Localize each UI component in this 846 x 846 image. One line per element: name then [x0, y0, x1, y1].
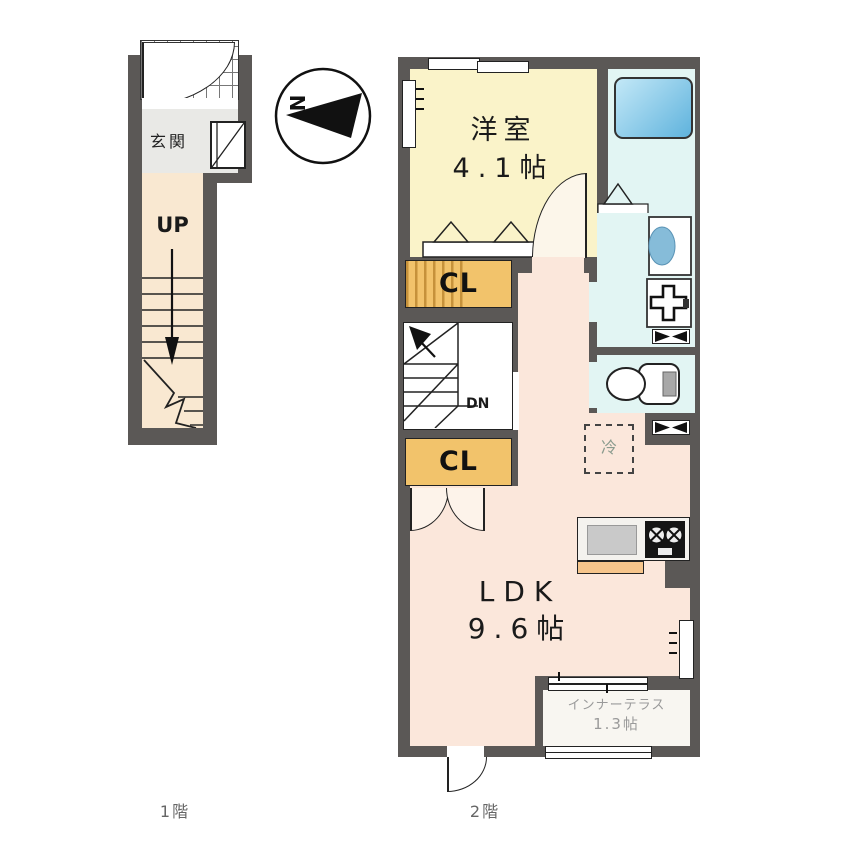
staircase-up-icon [142, 245, 203, 428]
ldk-floor-lower [410, 676, 535, 746]
terrace-sliding-door-bottom [545, 746, 652, 759]
louver-window-icon [652, 329, 690, 344]
floor1-caption: 1階 [135, 798, 215, 822]
stairs-opening [513, 372, 519, 430]
washroom-doorway [589, 282, 597, 322]
western-room-name: 洋室 [410, 112, 597, 150]
floor2-caption: 2階 [445, 798, 525, 822]
bathroom-folding-door-icon [596, 178, 650, 216]
refrigerator-label: 冷 [586, 426, 632, 470]
washing-machine-pan-icon [646, 278, 692, 328]
closet-folding-doors-icon [422, 218, 547, 259]
window-ldk-tick [669, 642, 677, 644]
stairs-up-label: UP [142, 213, 203, 237]
window-ldk-tick [669, 632, 677, 634]
western-room-doorway [532, 257, 584, 273]
closet-lower: CL [405, 438, 512, 486]
compass-north-label: N [285, 95, 309, 112]
toilet-doorway [589, 362, 597, 408]
terrace-door-tick [558, 672, 560, 681]
bathtub-icon [614, 77, 693, 139]
inner-terrace-name: インナーテラス [543, 694, 690, 713]
ldk-area: 9.6帖 [425, 610, 615, 647]
kitchen-right-floor [645, 445, 690, 490]
window-left [402, 80, 416, 148]
refrigerator-space: 冷 [584, 424, 634, 474]
terrace-door-line [549, 683, 647, 684]
kitchen-sink [587, 525, 637, 555]
ldk-doorway [447, 746, 484, 757]
stairs-down-label: DN [466, 396, 489, 412]
window-sliding-top-left [428, 58, 480, 70]
washbasin-icon [648, 216, 692, 276]
window-sliding-top-right [477, 61, 529, 73]
staircase-down [403, 322, 513, 430]
terrace-door-line [546, 752, 651, 753]
staircase-down-icon [404, 323, 511, 428]
shoe-cabinet-icon [210, 121, 246, 169]
toilet-icon [603, 358, 691, 410]
closet-lower-label: CL [406, 439, 511, 484]
window-left-tick [416, 98, 424, 100]
floor-plan-canvas: 玄関 UP 1階 N [0, 0, 846, 846]
inner-terrace-area: 1.3帖 [543, 713, 690, 734]
inner-terrace-label: インナーテラス 1.3帖 [543, 694, 690, 734]
terrace-door-tick [606, 684, 608, 693]
stove-icon [645, 521, 685, 558]
louver-window-icon [652, 420, 690, 435]
compass-icon: N [272, 65, 374, 167]
ldk-label: LDK 9.6帖 [425, 573, 615, 647]
closet-upper-label: CL [406, 261, 511, 306]
entrance-label: 玄関 [150, 128, 188, 152]
window-ldk-right [679, 620, 694, 679]
window-left-tick [416, 88, 424, 90]
window-left-tick [416, 108, 424, 110]
ldk-exterior-door-arc [447, 757, 487, 792]
terrace-sliding-door-top [548, 677, 648, 691]
ldk-name: LDK [425, 573, 615, 610]
kitchen-wall-jog [665, 561, 700, 588]
window-ldk-tick [669, 652, 677, 654]
closet-upper: CL [405, 260, 512, 308]
